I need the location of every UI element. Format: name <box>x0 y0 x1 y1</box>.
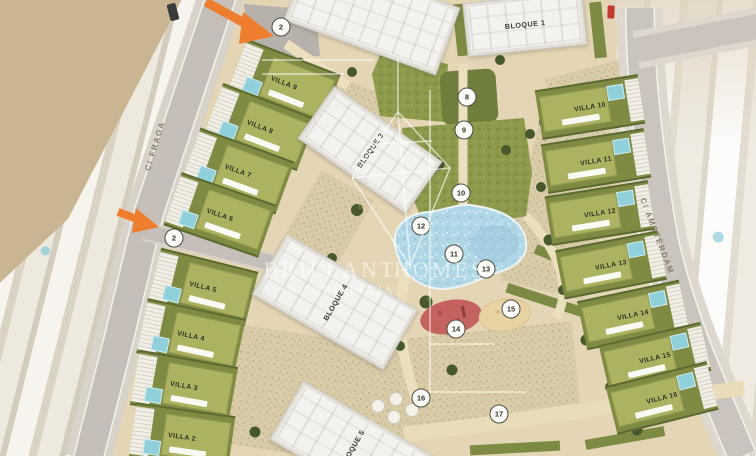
villa-label: VILLA 10 <box>535 76 645 138</box>
bloque-label: BLOQUE 5 <box>286 367 418 456</box>
unit-number-label: 14 <box>452 325 460 334</box>
unit-number-label: 10 <box>457 189 465 198</box>
bloque-label: BLOQUE 1 <box>464 0 587 56</box>
unit-number-label: 2 <box>279 23 283 32</box>
unit-number-marker: 15 <box>502 300 521 319</box>
unit-number-marker: 8 <box>458 88 477 107</box>
unit-number-marker: 14 <box>447 320 466 339</box>
unit-number-marker: 17 <box>490 405 509 424</box>
unit-number-marker: 2 <box>165 229 184 248</box>
unit-number-marker: 11 <box>445 245 464 264</box>
street-label: C/ FRAGA <box>143 120 167 172</box>
bloque-building: BLOQUE 4 <box>252 234 419 371</box>
site-plan: VILLA 9 VILLA 8 VILLA 7 VILLA 6 VILLA 5 <box>0 0 756 456</box>
unit-number-marker: 9 <box>455 121 474 140</box>
unit-number-marker: 12 <box>412 217 431 236</box>
unit-number-marker: 13 <box>477 260 496 279</box>
bloque-label: BLOQUE 4 <box>268 220 402 384</box>
unit-number-marker: 2 <box>272 18 291 37</box>
unit-number-label: 15 <box>507 305 515 314</box>
unit-number-label: 8 <box>465 93 469 102</box>
unit-number-label: 9 <box>462 126 466 135</box>
unit-number-label: 17 <box>495 410 503 419</box>
unit-number-label: 11 <box>450 250 458 259</box>
unit-number-label: 16 <box>417 394 425 403</box>
bloque-building: BLOQUE 3 <box>298 86 443 214</box>
plan-layer: VILLA 9 VILLA 8 VILLA 7 VILLA 6 VILLA 5 <box>0 0 756 456</box>
unit-number-marker: 16 <box>412 389 431 408</box>
unit-number-label: 12 <box>417 222 425 231</box>
bloque-building: BLOQUE 5 <box>269 381 435 456</box>
unit-number-marker: 10 <box>452 184 471 203</box>
bloque-building: BLOQUE 1 <box>463 0 588 57</box>
bloque-label: BLOQUE 3 <box>307 79 432 221</box>
unit-number-label: 13 <box>482 265 490 274</box>
unit-number-label: 2 <box>172 234 176 243</box>
